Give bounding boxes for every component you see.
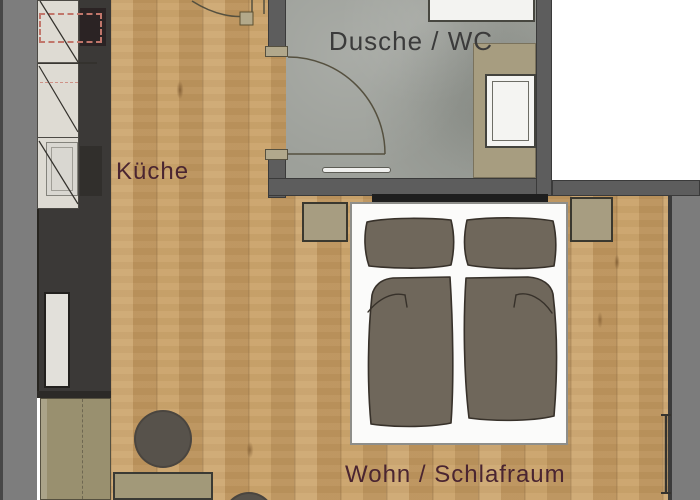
kitchen-appliance-white [44,292,70,388]
counter-appliance-dark [80,146,102,196]
kitchen-divider-line [37,391,111,398]
cabinet-split-line [82,399,83,499]
nightstand-right [570,197,613,242]
kitchen-label: Küche [116,158,189,186]
washbasin-inner-outline [492,81,529,141]
kitchen-cabinet-2 [37,63,79,138]
stool-round-1 [134,410,192,468]
left-outer-wall [3,0,37,500]
pillow-right [465,218,556,269]
right-outer-wall [672,196,700,500]
shower-drain-channel [322,167,391,173]
bathroom-wall-right [536,0,552,196]
kitchen-sink [46,142,78,196]
appliance-dashed-outline [39,13,102,43]
duvet-right [464,277,556,420]
bathroom-label: Dusche / WC [286,26,536,57]
pillow-left [365,218,454,268]
kitchen-lower-cabinet [40,398,111,500]
living-room-label: Wohn / Schlafraum [345,461,566,489]
shower-tray [428,0,535,22]
nightstand-left [302,202,348,242]
bedding-drawing [352,204,566,443]
door-jamb-bottom [265,149,288,160]
floor-plan: Dusche / WC Küche Wohn / Schlafraum [0,0,700,500]
bedroom-wall-top [552,180,700,196]
door-jamb-top [265,46,288,57]
table-bench [113,472,213,500]
sink-basin-outline [51,147,73,191]
bed-headboard [372,194,548,202]
outside-area [552,0,700,180]
washbasin [485,74,536,148]
bathroom-wall-left-upper [268,0,286,48]
appliance-dashed-line [40,82,78,83]
double-bed [350,202,568,445]
